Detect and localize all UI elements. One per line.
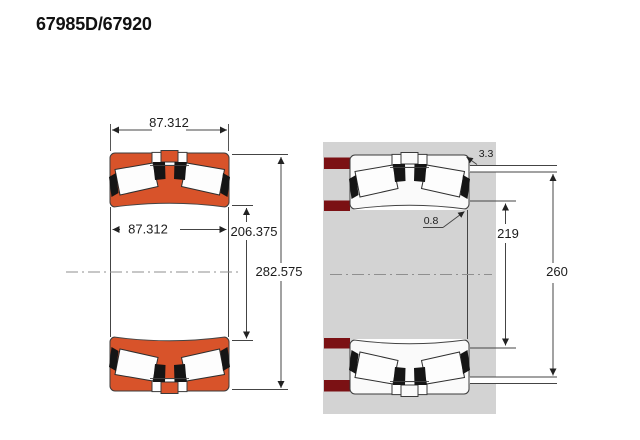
dim-bore-diameter-label: 206.375	[231, 224, 278, 239]
bearing-section-left-bottom	[109, 336, 230, 394]
dim-overall-width-label: 87.312	[149, 115, 189, 130]
bearing-section-left-top	[109, 151, 230, 209]
bearing-section-right-bottom	[349, 339, 470, 397]
bearing-section-right-top	[349, 153, 470, 211]
dim-shaft-fillet-label: 0.8	[424, 215, 439, 227]
dim-housing-shoulder-label: 260	[546, 264, 568, 279]
shaft-shoulder-top	[324, 201, 350, 212]
dim-shaft-shoulder-label: 219	[497, 226, 519, 241]
dim-housing-fillet-label: 3.3	[479, 148, 494, 160]
left-view-bearing-section: 87.312 87.312 206.375 282.575	[66, 115, 303, 394]
bearing-datasheet-page: 67985D/67920	[0, 0, 640, 440]
dim-outer-diameter-label: 282.575	[256, 264, 303, 279]
right-view-mounted-section: 219 260 3.3 0.8	[323, 142, 568, 414]
technical-drawing: 219 260 3.3 0.8	[0, 0, 640, 440]
dim-inner-width-label: 87.312	[128, 222, 168, 237]
shaft-shoulder-bottom	[324, 338, 350, 349]
housing-shoulder-top	[324, 158, 350, 170]
housing-shoulder-bottom	[324, 380, 350, 392]
